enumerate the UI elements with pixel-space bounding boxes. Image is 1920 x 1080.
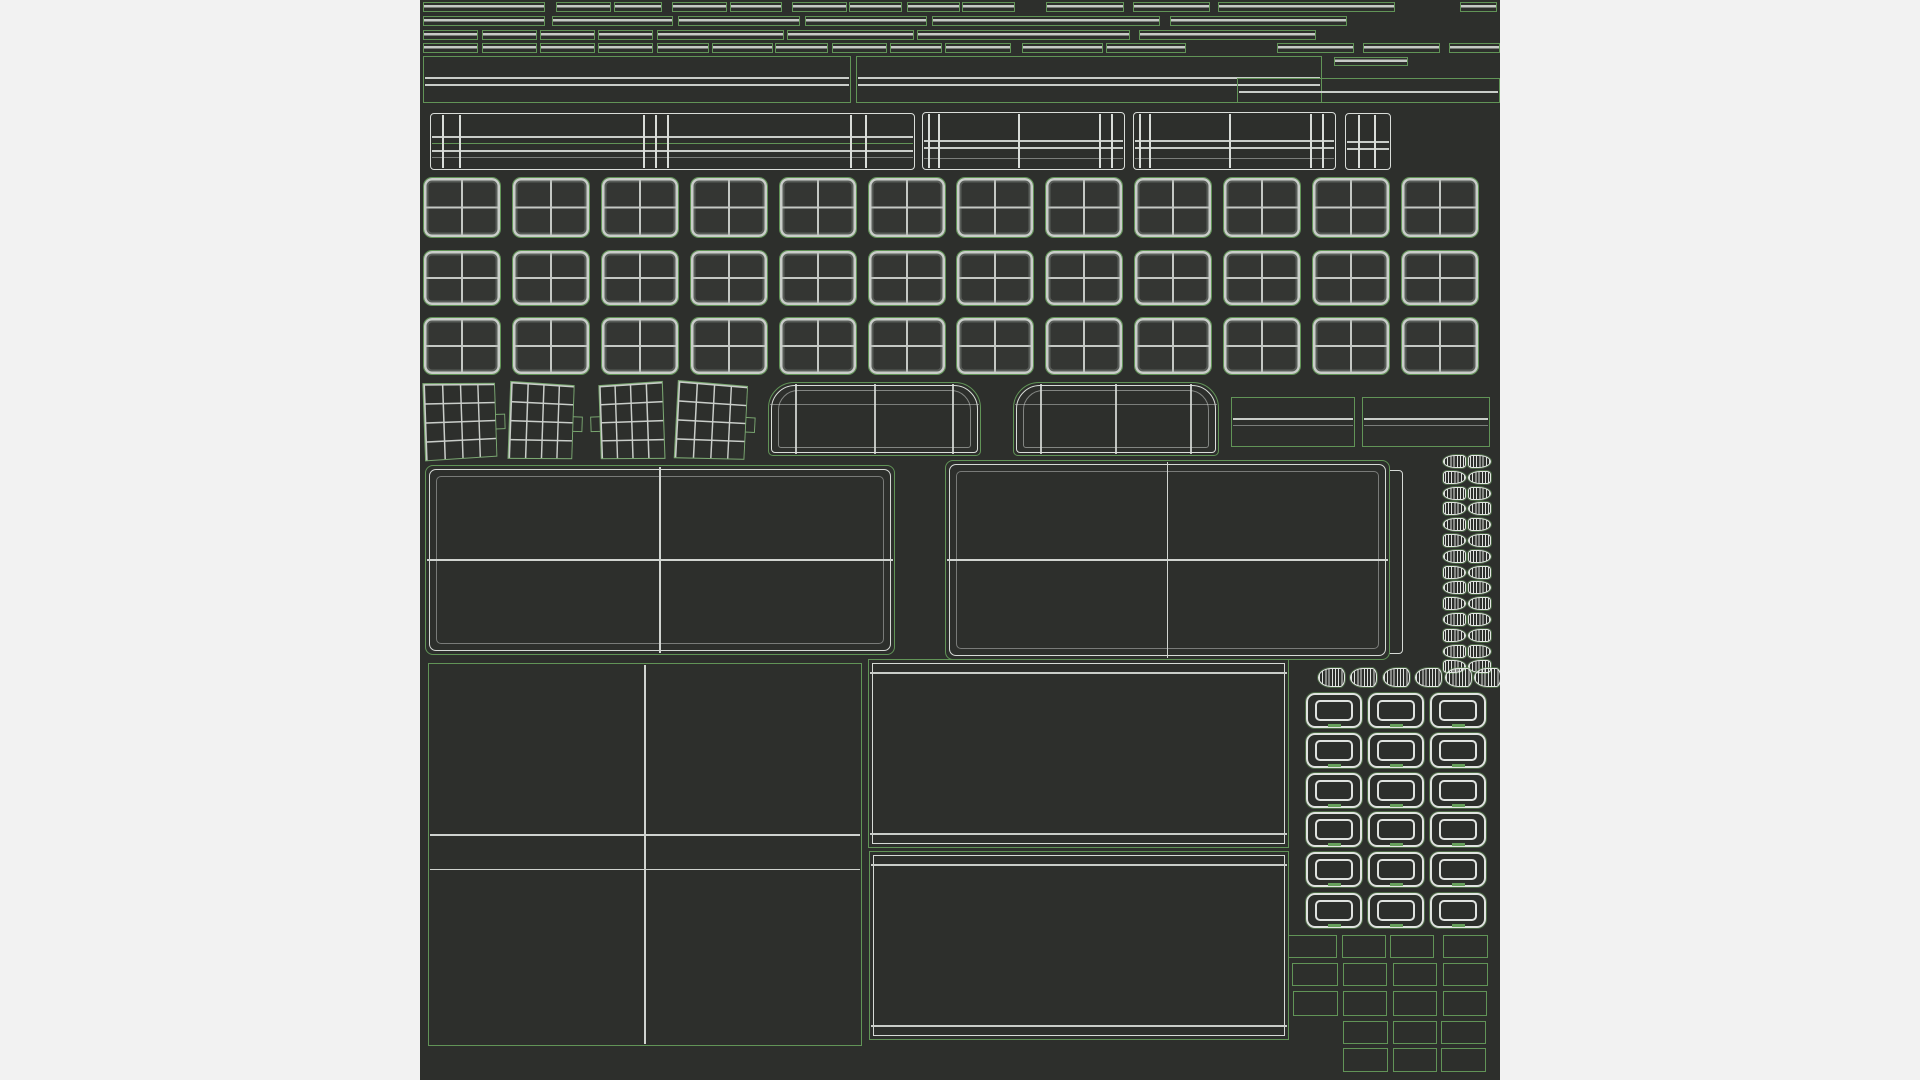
wire-hline (1015, 404, 1217, 405)
uv-island-strip[interactable] (540, 43, 595, 53)
uv-island-tooth[interactable] (1443, 645, 1466, 658)
uv-island-keycap[interactable] (423, 250, 501, 306)
uv-island-keycap[interactable] (1045, 250, 1123, 306)
uv-island-rect[interactable] (1362, 397, 1490, 447)
wire-hline (432, 150, 913, 152)
wire-hline (1135, 140, 1334, 142)
wire-vline (442, 115, 444, 168)
uv-island-cone[interactable] (1445, 668, 1472, 687)
uv-island-strip[interactable] (423, 16, 545, 26)
uv-island-strip[interactable] (1170, 16, 1347, 26)
uv-island-tooth[interactable] (1443, 534, 1466, 547)
wire-hline (924, 140, 1123, 142)
uv-island-keycap[interactable] (1401, 317, 1479, 375)
wire-hline (432, 157, 913, 158)
uv-island-tooth[interactable] (1468, 455, 1491, 468)
uv-island-strip[interactable] (1363, 43, 1440, 53)
uv-island-strip[interactable] (556, 2, 611, 12)
uv-island-keycap[interactable] (779, 317, 857, 375)
uv-island-strip[interactable] (423, 2, 545, 12)
uv-island-tooth[interactable] (1468, 550, 1491, 563)
uv-island-tooth[interactable] (1443, 566, 1466, 579)
uv-island-keycap[interactable] (601, 250, 679, 306)
uv-island-small-rect[interactable] (1292, 963, 1338, 986)
uv-island-frame[interactable] (1430, 893, 1486, 928)
wire-hline (1347, 148, 1389, 150)
uv-island-small-rect[interactable] (1293, 991, 1338, 1016)
uv-island-small-rect[interactable] (1342, 935, 1386, 958)
uv-island-tooth[interactable] (1443, 471, 1466, 484)
uv-island-strip[interactable] (917, 30, 1130, 40)
uv-island-small-rect[interactable] (1288, 935, 1337, 958)
wire-hline (1364, 425, 1488, 426)
wire-hline (430, 834, 860, 836)
uv-island-small-rect[interactable] (1393, 1048, 1437, 1072)
wire-vline (1322, 114, 1324, 168)
uv-island-beam[interactable] (1345, 113, 1391, 170)
wire-hline (1364, 418, 1488, 420)
uv-island-strip[interactable] (423, 30, 478, 40)
wire-vline (1018, 114, 1020, 168)
uv-island-strip[interactable] (598, 43, 653, 53)
uv-island-tooth[interactable] (1468, 502, 1491, 515)
wire-hline (432, 143, 913, 144)
uv-island-cone[interactable] (1474, 668, 1500, 687)
uv-island-strip[interactable] (792, 2, 847, 12)
uv-island-keycap[interactable] (690, 317, 768, 375)
uv-island-fan[interactable] (422, 383, 497, 462)
uv-island-frame[interactable] (1306, 893, 1362, 928)
uv-island-strip[interactable] (1277, 43, 1354, 53)
uv-island-fan[interactable] (598, 381, 665, 459)
uv-island-frame[interactable] (1430, 733, 1486, 768)
uv-island-strip[interactable] (1139, 30, 1316, 40)
uv-island-small-rect[interactable] (1441, 1048, 1486, 1072)
uv-island-strip[interactable] (1046, 2, 1124, 12)
uv-island-beam[interactable] (430, 113, 915, 170)
uv-island-tooth[interactable] (1468, 597, 1491, 610)
uv-island-tooth[interactable] (1468, 629, 1491, 642)
wire-hline (1135, 147, 1334, 149)
wire-hline (1233, 418, 1353, 420)
uv-island-keycap[interactable] (956, 317, 1034, 375)
uv-island-small-rect[interactable] (1393, 1021, 1437, 1044)
uv-island-keycap[interactable] (690, 177, 768, 238)
wire-hline (770, 404, 979, 405)
uv-island-frame[interactable] (1306, 852, 1362, 887)
uv-island-frame[interactable] (1430, 773, 1486, 808)
wire-hline (1135, 158, 1334, 159)
uv-island-keycap[interactable] (1401, 250, 1479, 306)
uv-island-arch[interactable] (768, 382, 981, 456)
uv-island-keycap[interactable] (1134, 250, 1212, 306)
uv-island-cone[interactable] (1318, 668, 1345, 687)
uv-island-keycap[interactable] (779, 177, 857, 238)
wire-vline (1167, 462, 1169, 658)
uv-island-strip[interactable] (1106, 43, 1186, 53)
uv-island-strip[interactable] (482, 43, 537, 53)
uv-island-keycap[interactable] (868, 177, 946, 238)
uv-island-keycap[interactable] (868, 317, 946, 375)
uv-island-tooth[interactable] (1443, 629, 1466, 642)
wire-hline (430, 869, 860, 871)
uv-island-strip[interactable] (730, 2, 782, 12)
uv-island-square-panel[interactable] (428, 663, 862, 1046)
wire-hline (870, 672, 1287, 674)
uv-island-small-rect[interactable] (1390, 935, 1434, 958)
uv-island-strip[interactable] (672, 2, 727, 12)
uv-island-tooth[interactable] (1443, 613, 1466, 626)
uv-island-strip[interactable] (614, 2, 662, 12)
uv-island-keycap[interactable] (1312, 177, 1390, 238)
uv-island-fan[interactable] (674, 380, 748, 460)
uv-island-tooth[interactable] (1443, 550, 1466, 563)
uv-island-small-rect[interactable] (1443, 963, 1488, 986)
uv-island-tooth[interactable] (1443, 487, 1466, 500)
uv-island-strip[interactable] (423, 43, 478, 53)
wire-vline (1190, 384, 1192, 454)
uv-island-small-rect[interactable] (1343, 991, 1387, 1016)
uv-island-tooth[interactable] (1443, 455, 1466, 468)
wire-hline (871, 1025, 1287, 1027)
uv-island-small-rect[interactable] (1343, 963, 1387, 986)
uv-island-small-rect[interactable] (1443, 935, 1488, 958)
wire-hline (871, 864, 1287, 866)
uv-island-keycap[interactable] (1223, 317, 1301, 375)
uv-island-cone[interactable] (1415, 668, 1442, 687)
wire-vline (643, 115, 645, 168)
wire-vline (1374, 115, 1376, 168)
uv-island-tooth[interactable] (1468, 581, 1491, 594)
uv-island-strip[interactable] (1334, 57, 1408, 66)
uv-island-keycap[interactable] (868, 250, 946, 306)
uv-island-tooth[interactable] (1443, 502, 1466, 515)
uv-island-keycap[interactable] (1401, 177, 1479, 238)
letterbox-left (0, 0, 420, 1080)
page: { "colors": { "background": "#f2f2f2", "… (0, 0, 1920, 1080)
uv-island-strip[interactable] (552, 16, 673, 26)
uv-island-frame[interactable] (1368, 693, 1424, 728)
uv-island-cone[interactable] (1350, 668, 1377, 687)
uv-island-frame[interactable] (1368, 893, 1424, 928)
wire-vline (1099, 114, 1101, 168)
uv-island-panel[interactable] (423, 56, 851, 103)
uv-island-keycap[interactable] (690, 250, 768, 306)
uv-island-frame[interactable] (1430, 852, 1486, 887)
uv-island-strip[interactable] (678, 16, 800, 26)
uv-island-strip[interactable] (482, 30, 537, 40)
wire-hline (870, 833, 1287, 835)
uv-island-tooth[interactable] (1468, 613, 1491, 626)
uv-island-keycap[interactable] (1045, 177, 1123, 238)
wire-vline (1115, 384, 1117, 454)
uv-editor-canvas[interactable] (420, 0, 1500, 1080)
wire-vline (795, 384, 797, 454)
wire-hline (432, 136, 913, 138)
uv-island-strip[interactable] (890, 43, 942, 53)
uv-island-wide-panel[interactable] (869, 851, 1289, 1040)
uv-island-frame[interactable] (1306, 693, 1362, 728)
wire-vline (850, 115, 852, 168)
wire-hline (1347, 141, 1389, 143)
uv-island-tooth[interactable] (1468, 566, 1491, 579)
wire-vline (459, 115, 461, 168)
uv-island-keycap[interactable] (601, 177, 679, 238)
fan-tab (572, 416, 583, 432)
wire-hline (1233, 425, 1353, 426)
uv-island-strip[interactable] (1218, 2, 1395, 12)
wire-vline (1111, 114, 1113, 168)
uv-island-keycap[interactable] (423, 177, 501, 238)
wire-vline (874, 384, 876, 454)
uv-island-strip[interactable] (945, 43, 1011, 53)
wire-vline (1229, 114, 1231, 168)
uv-island-keycap[interactable] (1134, 317, 1212, 375)
uv-island-keycap[interactable] (1223, 177, 1301, 238)
uv-island-strip[interactable] (1022, 43, 1103, 53)
wire-vline (1358, 115, 1360, 168)
wire-vline (667, 115, 669, 168)
uv-island-frame[interactable] (1430, 693, 1486, 728)
uv-island-frame[interactable] (1430, 812, 1486, 847)
uv-island-keycap[interactable] (956, 177, 1034, 238)
uv-island-frame[interactable] (1368, 812, 1424, 847)
fan-tab (495, 414, 506, 430)
uv-island-rect[interactable] (1231, 397, 1355, 447)
uv-island-keycap[interactable] (1223, 250, 1301, 306)
uv-island-tooth[interactable] (1468, 487, 1491, 500)
uv-island-beam[interactable] (1133, 112, 1336, 170)
uv-island-strip[interactable] (787, 30, 914, 40)
uv-island-cone[interactable] (1383, 668, 1410, 687)
uv-island-tooth[interactable] (1468, 645, 1491, 658)
uv-island-beam[interactable] (922, 112, 1125, 170)
uv-island-arch[interactable] (1013, 382, 1219, 456)
wire-vline (1139, 114, 1141, 168)
fan-tab (590, 416, 601, 432)
uv-island-keycap[interactable] (1045, 317, 1123, 375)
uv-island-strip[interactable] (712, 43, 773, 53)
uv-island-frame[interactable] (1368, 852, 1424, 887)
uv-island-wide-panel[interactable] (868, 659, 1289, 848)
uv-island-strip[interactable] (1460, 2, 1497, 12)
uv-island-strip[interactable] (657, 43, 709, 53)
wire-vline (1149, 114, 1151, 168)
uv-island-keycap[interactable] (1312, 250, 1390, 306)
wire-vline (1310, 114, 1312, 168)
uv-island-strip[interactable] (1133, 2, 1210, 12)
uv-island-strip[interactable] (775, 43, 828, 53)
uv-island-small-rect[interactable] (1393, 991, 1437, 1016)
uv-island-strip[interactable] (1449, 43, 1500, 53)
uv-island-large-panel[interactable] (945, 460, 1390, 660)
uv-island-strip[interactable] (849, 2, 902, 12)
wire-vline (655, 115, 657, 168)
uv-island-frame[interactable] (1306, 812, 1362, 847)
uv-island-strip[interactable] (657, 30, 784, 40)
uv-island-strip[interactable] (540, 30, 595, 40)
uv-island-keycap[interactable] (1312, 317, 1390, 375)
uv-island-strip[interactable] (598, 30, 653, 40)
uv-island-keycap[interactable] (956, 250, 1034, 306)
uv-island-tooth[interactable] (1468, 471, 1491, 484)
uv-island-large-panel[interactable] (425, 465, 895, 655)
uv-island-tooth[interactable] (1443, 581, 1466, 594)
wire-hline (924, 158, 1123, 159)
uv-island-small-rect[interactable] (1343, 1021, 1388, 1044)
uv-island-strip[interactable] (805, 16, 927, 26)
uv-island-keycap[interactable] (512, 317, 590, 375)
wire-vline (659, 467, 661, 653)
uv-island-panel[interactable] (1237, 78, 1500, 103)
uv-island-frame[interactable] (1368, 773, 1424, 808)
uv-island-keycap[interactable] (512, 177, 590, 238)
wire-vline (928, 114, 930, 168)
wire-vline (865, 115, 867, 168)
uv-island-tooth[interactable] (1443, 597, 1466, 610)
uv-island-keycap[interactable] (512, 250, 590, 306)
wire-vline (938, 114, 940, 168)
letterbox-right (1500, 0, 1920, 1080)
wire-hline (947, 559, 1388, 561)
uv-island-strip[interactable] (932, 16, 1160, 26)
uv-island-frame[interactable] (1306, 773, 1362, 808)
wire-hline (425, 77, 849, 79)
uv-island-tooth[interactable] (1443, 518, 1466, 531)
uv-island-small-rect[interactable] (1441, 1021, 1486, 1044)
uv-island-tooth[interactable] (1468, 518, 1491, 531)
wire-hline (425, 84, 849, 86)
uv-island-strip[interactable] (832, 43, 887, 53)
uv-island-strip[interactable] (907, 2, 960, 12)
uv-island-strip[interactable] (962, 2, 1015, 12)
uv-island-tooth[interactable] (1468, 534, 1491, 547)
uv-island-fan[interactable] (507, 381, 574, 459)
uv-island-keycap[interactable] (423, 317, 501, 375)
uv-island-small-rect[interactable] (1343, 1048, 1388, 1072)
wire-hline (1239, 91, 1498, 93)
wire-vline (952, 384, 954, 454)
uv-island-small-rect[interactable] (1393, 963, 1437, 986)
uv-island-small-rect[interactable] (1443, 991, 1487, 1016)
uv-island-keycap[interactable] (779, 250, 857, 306)
wire-hline (924, 147, 1123, 149)
uv-island-keycap[interactable] (1134, 177, 1212, 238)
uv-island-frame[interactable] (1306, 733, 1362, 768)
wire-vline (1040, 384, 1042, 454)
wire-hline (427, 559, 893, 561)
wire-vline (644, 665, 646, 1044)
fan-tab (745, 417, 756, 433)
uv-island-keycap[interactable] (601, 317, 679, 375)
uv-island-frame[interactable] (1368, 733, 1424, 768)
